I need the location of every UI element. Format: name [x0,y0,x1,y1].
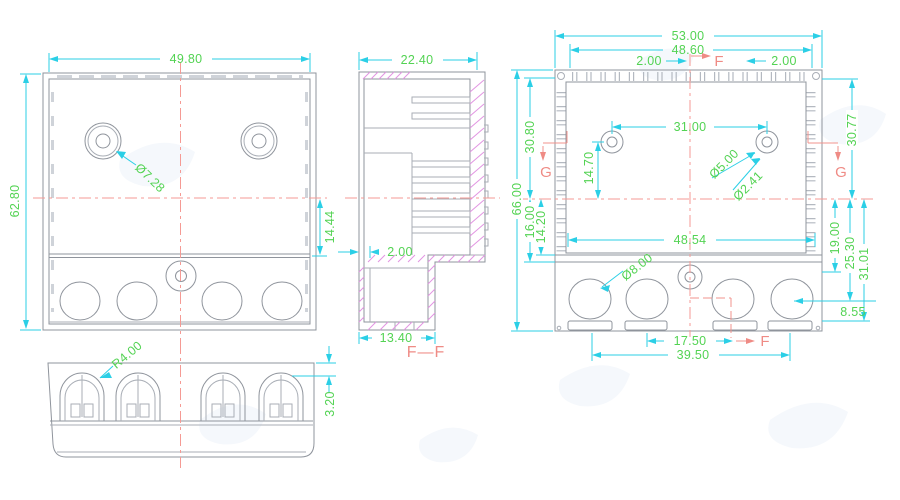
section-hatching [359,72,485,330]
section-outline [359,72,485,330]
dim-rear-height-left: 30.80 [523,121,537,154]
rear-section-marks: F F G G [540,53,847,350]
dim-front-height: 62.80 [8,185,22,218]
dim-rear-overall-height: 66.00 [510,183,524,216]
dim-rear-step-b: 25.30 [843,237,857,270]
rear-slot-3 [713,321,757,330]
rear-label-f-top: F [714,53,723,70]
section-fins [412,97,470,233]
dim-rear-ledge-b: 14.20 [534,211,548,244]
dim-section-wall: 2.00 [387,245,413,259]
dim-rear-slot-span: 39.50 [677,348,710,362]
rear-label-f-bottom: F [760,333,769,350]
front-port-2 [117,282,157,320]
dim-rear-tab-right: 2.00 [771,54,797,68]
rear-slot-2 [625,321,667,330]
front-port-1 [60,282,100,320]
dim-rear-inner-width: 48.60 [672,43,705,57]
front-port-4 [262,282,302,320]
section-geometry [359,72,488,330]
rear-hole-left [601,131,623,153]
bottom-dome-2 [116,373,160,421]
dim-rear-overall-width: 53.00 [672,29,705,43]
rear-port-4 [771,279,813,319]
dim-section-depth: 22.40 [401,53,434,67]
dim-rear-step-a: 19.00 [828,222,842,255]
bottom-dome-1 [60,373,104,421]
dim-bottom-lip: 3.20 [323,391,337,417]
front-port-3 [202,282,242,320]
front-view: 49.80 62.80 Ø7.28 14.44 [8,52,337,344]
dim-rear-tab-left: 2.00 [636,54,662,68]
dim-rear-hole-drop: 14.70 [582,152,596,185]
rear-port-2 [626,279,668,319]
rear-hole-right [756,131,778,153]
dim-rear-hole-spacing: 31.00 [674,120,707,134]
dim-bottom-radius: R4.00 [109,338,145,371]
cad-drawing-page: 49.80 62.80 Ø7.28 14.44 [0,0,900,500]
rear-label-g-right: G [835,164,847,181]
bottom-view: R4.00 3.20 [48,338,337,468]
section-view: 22.40 2.00 13.40 F—F [338,52,500,361]
front-hole-right [241,123,277,159]
dim-rear-height-right: 30.77 [845,114,859,147]
front-inner-wall [49,79,310,324]
rear-view: F F G G [510,29,876,362]
rear-slot-1 [568,321,612,330]
dim-rear-port-offset: 8.55 [840,305,866,319]
dim-rear-slot-pitch: 17.50 [674,334,707,348]
dim-front-width: 49.80 [170,52,203,66]
cad-drawing-canvas: 49.80 62.80 Ø7.28 14.44 [0,0,900,500]
dim-section-base: 13.40 [380,331,413,345]
rear-slot-4 [768,321,812,330]
dim-front-offset: 14.44 [323,211,337,244]
rear-cavity [566,82,806,253]
rear-label-g-left: G [540,164,552,181]
front-geometry [43,73,316,330]
section-label-ff: F—F [407,344,446,361]
dim-rear-step-c: 31.01 [857,248,871,281]
rear-geometry [555,70,822,331]
dim-rear-cavity-width: 48.54 [674,233,707,247]
rear-outline [555,70,822,331]
rear-port-3 [712,279,754,319]
rear-dimensions: 53.00 48.60 2.00 2.00 31.00 14.70 Ø5.00 … [510,29,876,362]
front-hole-left [85,123,121,159]
dim-rear-hole-inner-dia: Ø2.41 [730,168,765,203]
front-centerlines [33,62,327,344]
front-outline [43,73,316,330]
